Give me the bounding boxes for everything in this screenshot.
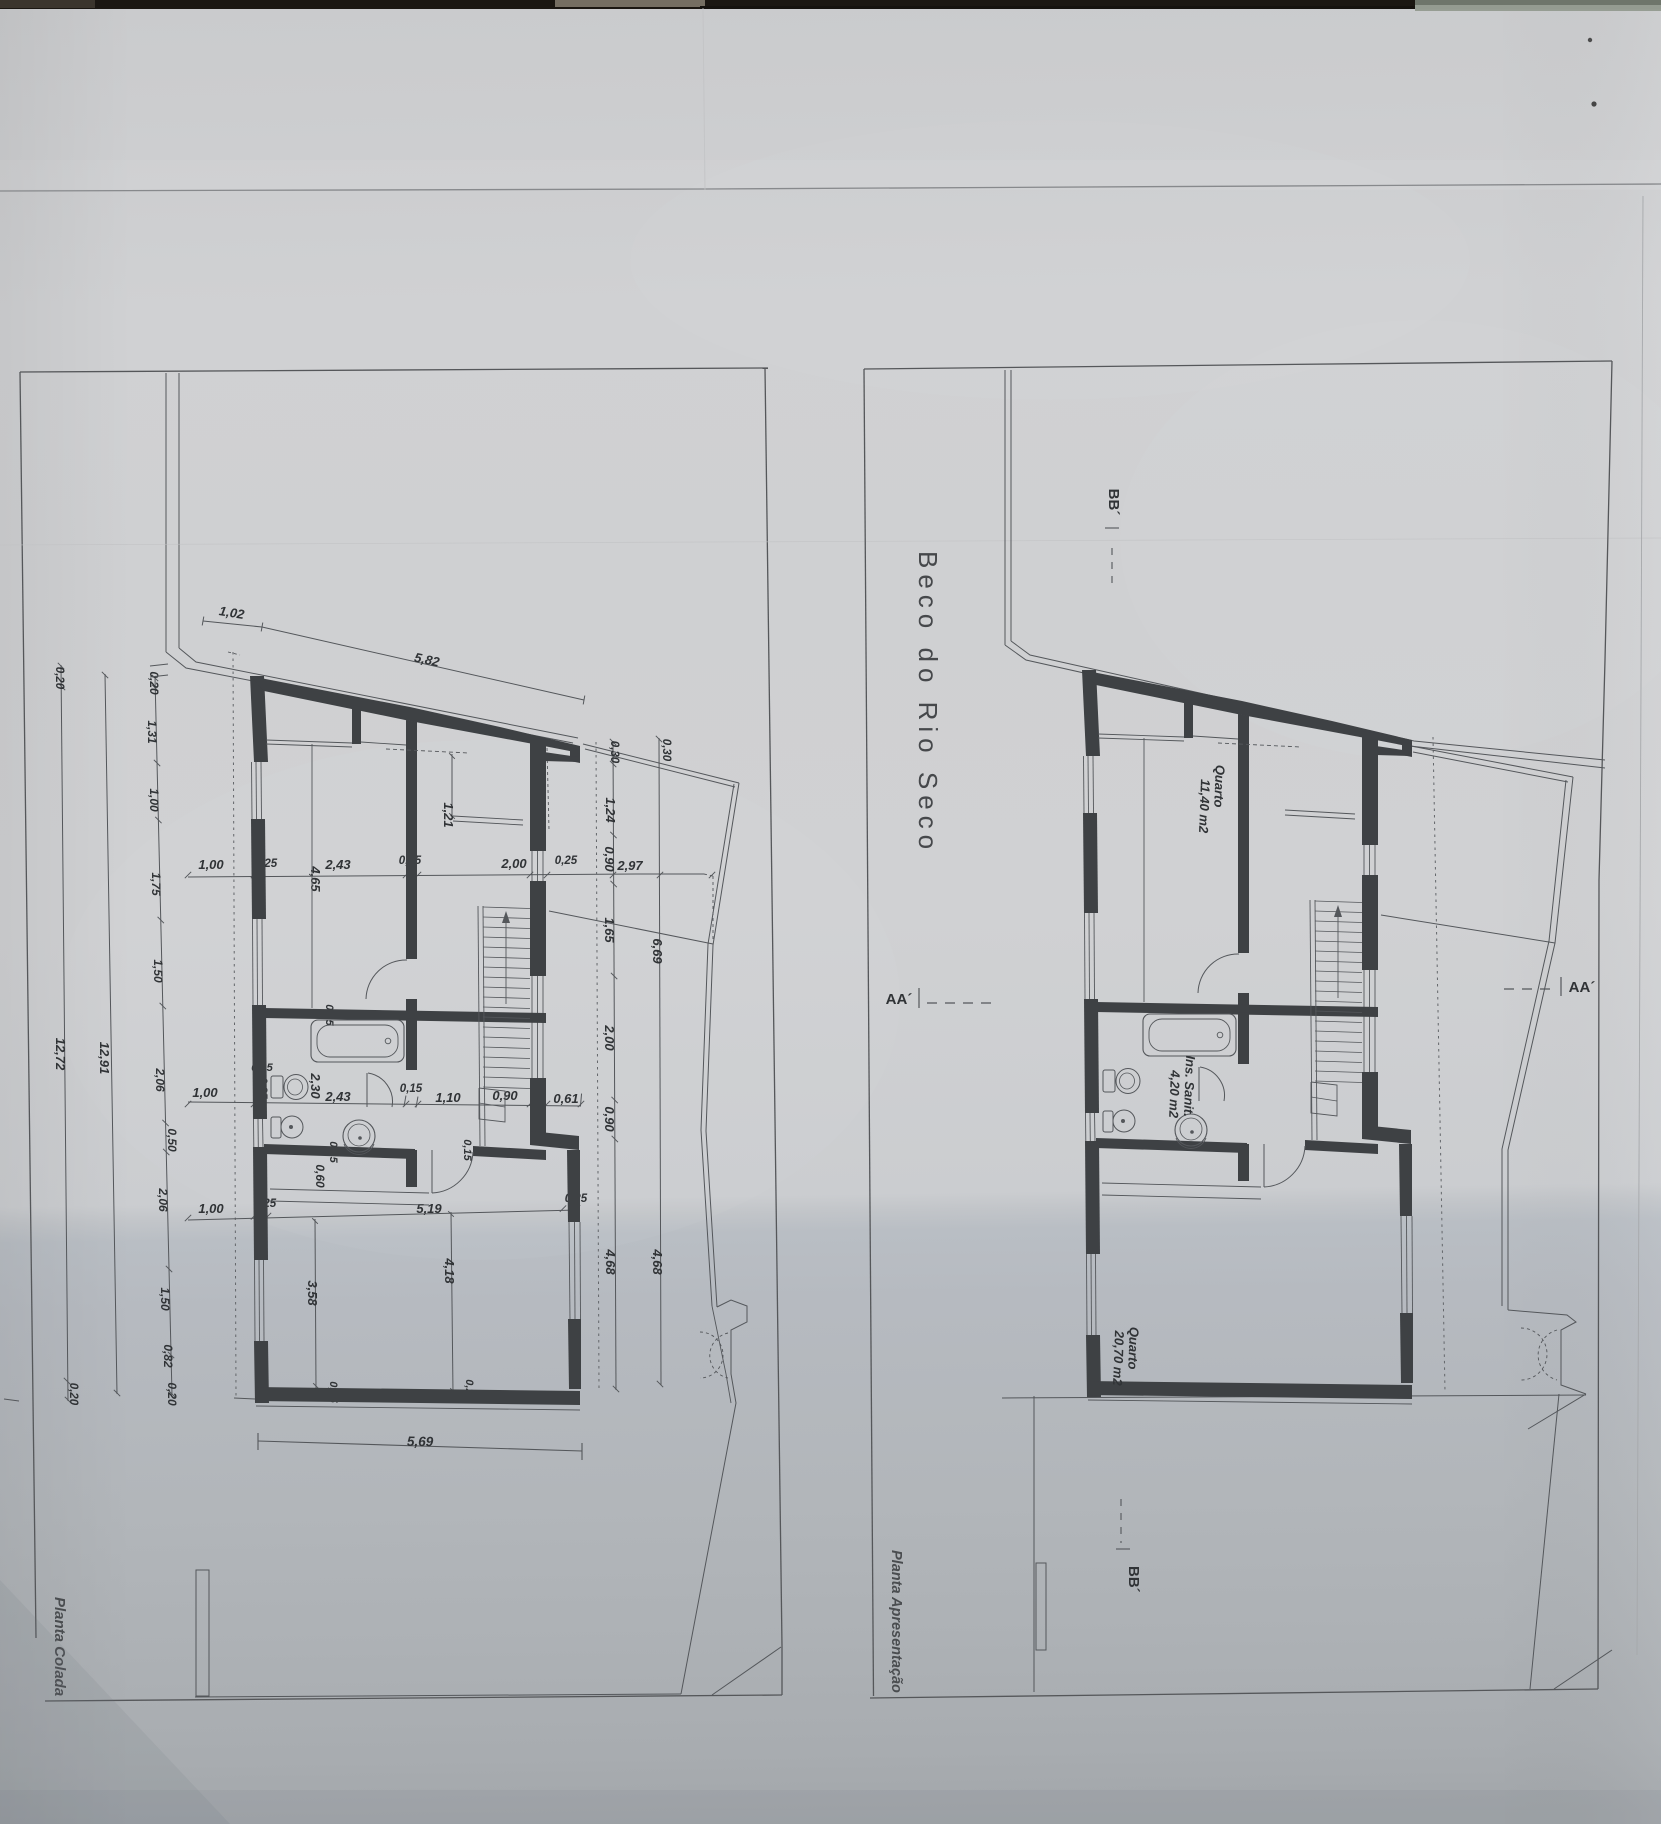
svg-text:2,97: 2,97 <box>616 858 643 873</box>
svg-text:12,72: 12,72 <box>53 1038 68 1071</box>
svg-text:Quarto: Quarto <box>1211 765 1227 808</box>
svg-text:Beco do Rio Seco: Beco do Rio Seco <box>913 551 943 855</box>
svg-text:2,06: 2,06 <box>156 1187 170 1212</box>
svg-text:4,65: 4,65 <box>308 865 323 892</box>
svg-text:0,61: 0,61 <box>553 1091 578 1106</box>
svg-text:2,43: 2,43 <box>324 857 351 872</box>
svg-text:1,21: 1,21 <box>441 802 456 827</box>
svg-text:2,06: 2,06 <box>153 1067 167 1092</box>
svg-text:20,70 m2: 20,70 m2 <box>1110 1329 1127 1386</box>
svg-text:0,20: 0,20 <box>53 667 65 690</box>
svg-text:1,24: 1,24 <box>603 797 618 823</box>
svg-text:1,31: 1,31 <box>145 720 159 744</box>
svg-text:1,10: 1,10 <box>435 1090 461 1105</box>
svg-text:0,60: 0,60 <box>313 1164 327 1188</box>
svg-text:Ins. Sanit.: Ins. Sanit. <box>1181 1055 1198 1117</box>
svg-text:2,00: 2,00 <box>500 856 527 871</box>
svg-text:0,30: 0,30 <box>660 739 672 762</box>
svg-text:5,19: 5,19 <box>416 1201 442 1216</box>
svg-text:0,90: 0,90 <box>602 846 617 872</box>
svg-text:AA´: AA´ <box>1569 979 1596 996</box>
svg-text:4,68: 4,68 <box>603 1248 618 1275</box>
svg-text:1,00: 1,00 <box>147 788 161 812</box>
svg-text:3,58: 3,58 <box>305 1280 320 1306</box>
svg-text:2,00: 2,00 <box>602 1024 617 1051</box>
svg-text:BB´: BB´ <box>1125 1566 1142 1593</box>
svg-text:4,18: 4,18 <box>442 1257 457 1284</box>
svg-text:1,50: 1,50 <box>158 1287 172 1311</box>
svg-text:Planta Apresentação: Planta Apresentação <box>888 1550 904 1693</box>
svg-text:0,20: 0,20 <box>147 671 161 695</box>
svg-text:1,00: 1,00 <box>198 1201 224 1216</box>
svg-text:0,50: 0,50 <box>165 1128 179 1152</box>
svg-text:0,30: 0,30 <box>608 741 620 764</box>
svg-text:11,40 m2: 11,40 m2 <box>1196 779 1213 834</box>
svg-text:0,90: 0,90 <box>602 1106 617 1132</box>
svg-text:12,91: 12,91 <box>97 1042 112 1075</box>
svg-text:0,15: 0,15 <box>461 1139 473 1161</box>
svg-text:5,69: 5,69 <box>407 1434 434 1449</box>
svg-text:4,20 m2: 4,20 m2 <box>1166 1069 1183 1119</box>
svg-text:1,75: 1,75 <box>149 872 163 896</box>
svg-text:0,25: 0,25 <box>555 855 578 867</box>
svg-text:0,20: 0,20 <box>67 1383 79 1406</box>
svg-text:6,69: 6,69 <box>650 938 665 964</box>
svg-text:1,65: 1,65 <box>602 917 617 943</box>
svg-text:4,68: 4,68 <box>650 1248 665 1275</box>
svg-text:1,00: 1,00 <box>192 1085 218 1100</box>
svg-text:0,15: 0,15 <box>400 1083 423 1095</box>
svg-text:1,50: 1,50 <box>151 959 165 983</box>
svg-text:2,30: 2,30 <box>308 1072 323 1099</box>
svg-text:0,82: 0,82 <box>161 1344 175 1368</box>
svg-text:1,00: 1,00 <box>198 857 224 872</box>
svg-text:AA´: AA´ <box>886 991 913 1008</box>
svg-text:2,43: 2,43 <box>324 1089 351 1104</box>
svg-text:BB´: BB´ <box>1105 489 1122 516</box>
svg-text:0,20: 0,20 <box>165 1382 179 1406</box>
